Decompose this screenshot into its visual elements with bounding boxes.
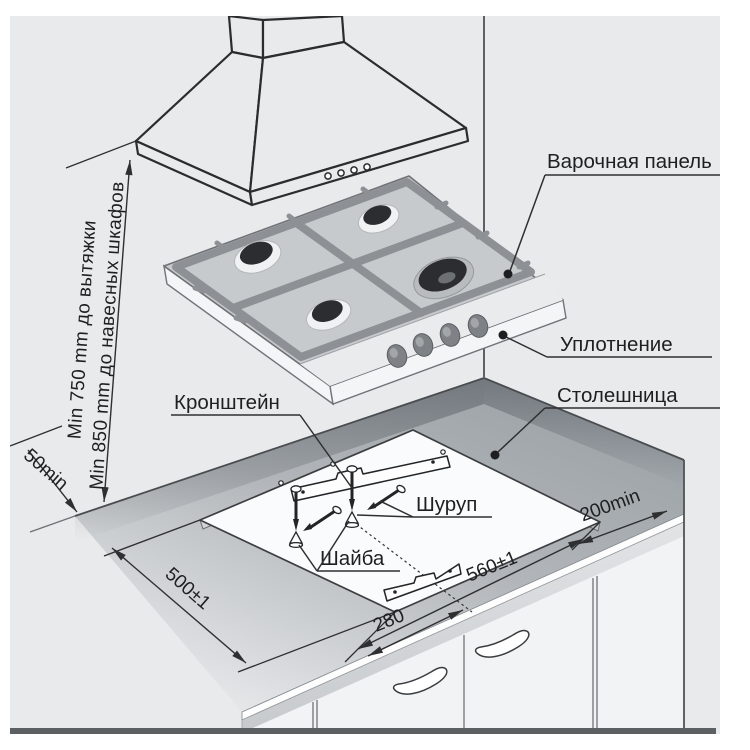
grate-finger xyxy=(236,318,245,321)
page-margin-right xyxy=(720,0,750,750)
grate-finger xyxy=(195,288,204,291)
leader-dot xyxy=(499,331,508,340)
hood-button-icon xyxy=(364,164,370,170)
label-countertop: Столешница xyxy=(557,384,678,407)
hood-button-icon xyxy=(338,170,344,176)
bracket-screw-icon xyxy=(441,450,445,454)
label-bracket: Кронштейн xyxy=(174,391,280,414)
label-screw: Шуруп xyxy=(416,493,477,516)
bracket-screw-icon xyxy=(279,481,283,485)
hood-button-icon xyxy=(351,167,357,173)
label-seal: Уплотнение xyxy=(560,333,673,356)
installation-diagram: Min 750 mm до вытяжки Min 850 mm до наве… xyxy=(0,0,750,750)
bracket-hole xyxy=(301,490,305,494)
diagram-canvas: Min 750 mm до вытяжки Min 850 mm до наве… xyxy=(0,0,750,750)
bracket-hole xyxy=(393,590,397,594)
label-panel: Варочная панель xyxy=(547,150,712,173)
page-margin-top xyxy=(0,0,750,16)
leader-dot xyxy=(504,270,513,279)
hood-button-icon xyxy=(325,173,331,179)
page-margin-bottom xyxy=(0,734,750,750)
drawing-bottom-border xyxy=(10,728,716,734)
page-margin-left xyxy=(0,0,10,750)
leader-dot xyxy=(491,451,500,460)
bracket-hole xyxy=(448,569,452,573)
bracket-hole xyxy=(431,460,435,464)
